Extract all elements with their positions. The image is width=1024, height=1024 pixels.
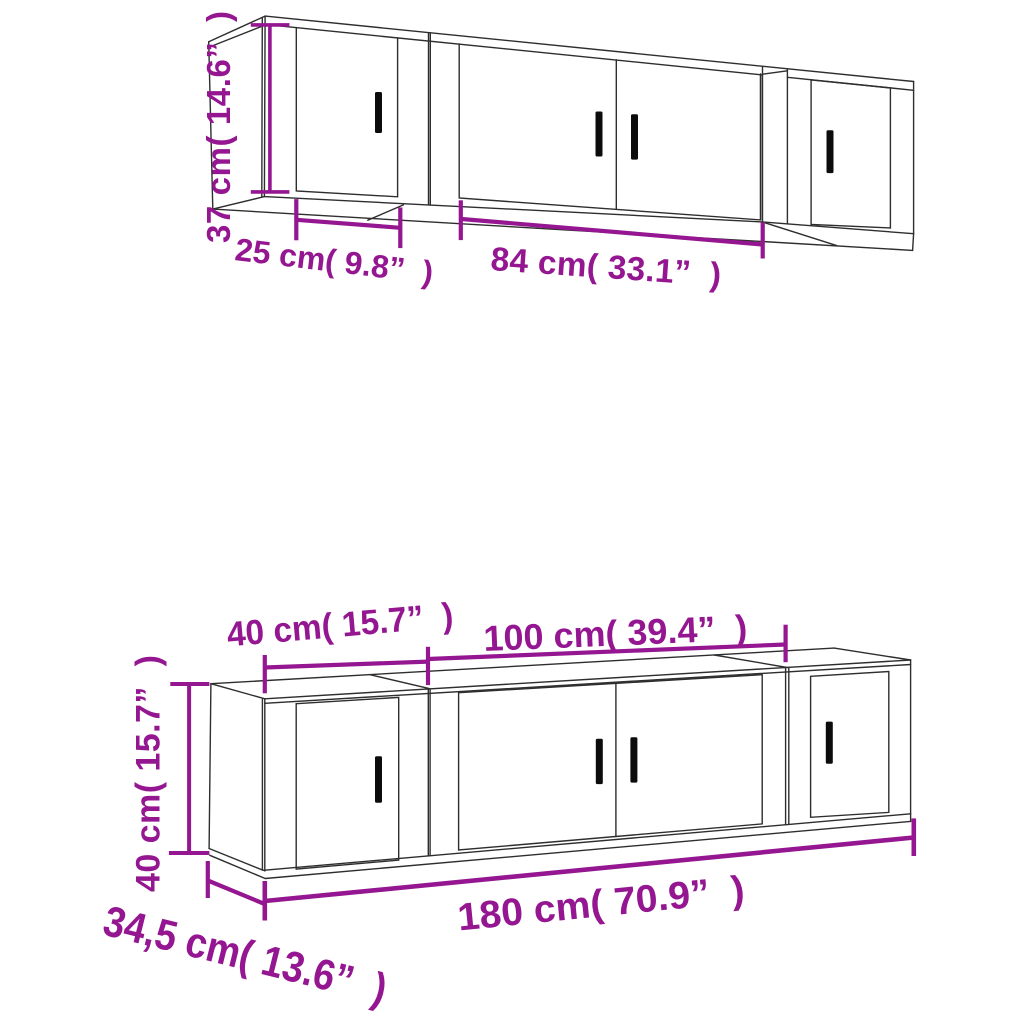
svg-text:40 cm( 15.7” ): 40 cm( 15.7” ) (130, 655, 168, 892)
svg-text:37 cm( 14.6” ): 37 cm( 14.6” ) (200, 11, 237, 243)
